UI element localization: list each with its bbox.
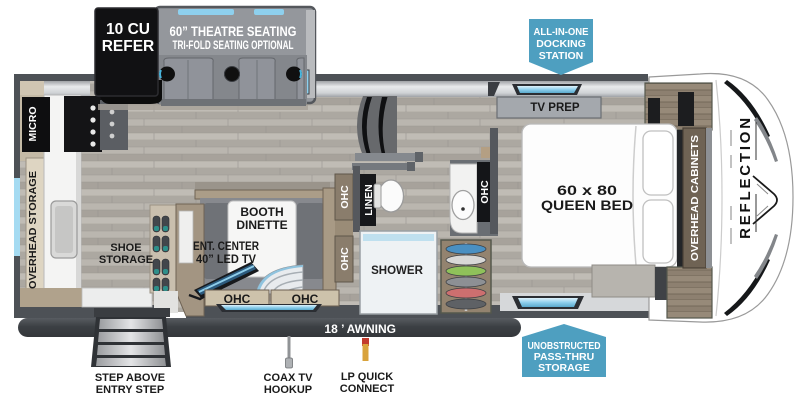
svg-text:ENT. CENTER: ENT. CENTER [193,239,259,253]
svg-text:OVERHEAD STORAGE: OVERHEAD STORAGE [27,171,39,289]
svg-text:REFER: REFER [102,38,155,55]
svg-text:SHOWER: SHOWER [371,265,423,277]
svg-text:OHC: OHC [224,292,251,306]
svg-text:60 x 80: 60 x 80 [557,182,617,198]
svg-text:STORAGE: STORAGE [99,254,153,266]
svg-text:OHC: OHC [292,292,319,306]
svg-text:OHC: OHC [339,185,351,209]
svg-text:HOOKUP: HOOKUP [264,384,312,396]
svg-text:CONNECT: CONNECT [340,383,395,395]
svg-text:LINEN: LINEN [363,184,375,216]
svg-text:STORAGE: STORAGE [538,362,590,374]
svg-text:STATION: STATION [539,50,584,62]
svg-text:10 CU: 10 CU [106,21,150,38]
svg-text:BOOTH: BOOTH [240,205,283,219]
svg-text:TRI-FOLD SEATING OPTIONAL: TRI-FOLD SEATING OPTIONAL [173,38,294,52]
svg-text:TV PREP: TV PREP [530,102,580,114]
svg-text:18 ’ AWNING: 18 ’ AWNING [324,322,396,336]
svg-text:REFLECTION: REFLECTION [737,115,754,239]
svg-text:ALL-IN-ONE: ALL-IN-ONE [534,26,589,38]
svg-text:OHC: OHC [339,247,351,271]
svg-text:DOCKING: DOCKING [536,38,586,50]
svg-text:QUEEN BED: QUEEN BED [541,197,633,213]
svg-text:40” LED TV: 40” LED TV [196,252,256,266]
svg-text:SHOE: SHOE [110,242,141,254]
svg-text:LP QUICK: LP QUICK [341,371,393,383]
svg-text:OVERHEAD CABINETS: OVERHEAD CABINETS [689,135,701,261]
svg-text:DINETTE: DINETTE [236,218,287,232]
svg-text:STEP ABOVE: STEP ABOVE [95,372,165,384]
svg-text:OHC: OHC [479,180,491,204]
svg-text:COAX TV: COAX TV [264,372,314,384]
svg-text:60” THEATRE SEATING: 60” THEATRE SEATING [170,23,297,39]
svg-text:MICRO: MICRO [27,107,39,142]
svg-text:ENTRY STEP: ENTRY STEP [96,384,164,396]
